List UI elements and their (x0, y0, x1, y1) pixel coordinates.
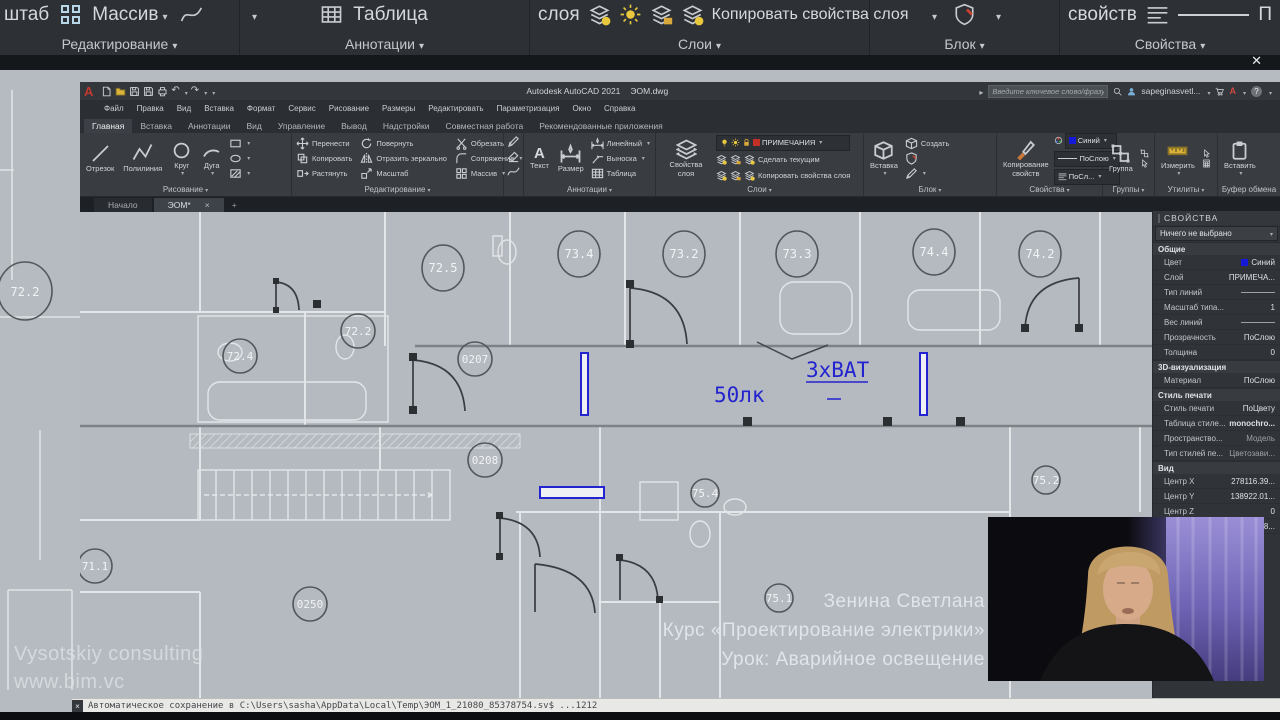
layer-lock-icon[interactable] (650, 3, 673, 26)
create-block-button[interactable]: Создать (905, 137, 950, 151)
svg-text:71.1: 71.1 (82, 560, 109, 573)
panel-label-layers[interactable]: Слои (656, 184, 863, 196)
ribbon-tab-bar: Главная Вставка Аннотации Вид Управление… (80, 117, 1280, 133)
file-tab-bar: Начало ЭОМ* × + (80, 197, 1280, 212)
ungroup-icon[interactable] (1140, 149, 1149, 158)
panel-label-groups[interactable]: Группы (1103, 184, 1154, 196)
lux-label: 50лк (714, 383, 765, 407)
linear-dim-button[interactable]: Линейный (591, 137, 650, 151)
property-row-centerx[interactable]: Центр X 278116.39... (1153, 474, 1280, 489)
lesson-title: Урок: Аварийное освещение (721, 649, 985, 671)
plot-icon[interactable] (157, 86, 168, 97)
tab-close-icon[interactable]: × (205, 200, 210, 210)
background-plan-strip: 72.2 (0, 70, 80, 712)
tab-annotate[interactable]: Аннотации (180, 119, 239, 133)
layer-color-swatch (753, 139, 760, 146)
block-attributes-icon[interactable] (905, 167, 950, 181)
luminaire-symbol (581, 353, 588, 415)
tab-featured-apps[interactable]: Рекомендованные приложения (531, 119, 670, 133)
palette-header[interactable]: СВОЙСТВА (1153, 211, 1280, 225)
panel-label-block[interactable]: Блок (878, 36, 1051, 53)
layer-lock-icon (742, 138, 751, 147)
zoom-panel-block: Блок (870, 0, 1060, 55)
svg-text:0250: 0250 (297, 598, 324, 611)
menu-parametric[interactable]: Параметризация (497, 104, 560, 113)
layer-on-icon[interactable] (588, 3, 611, 26)
leader-button[interactable]: Выноска (591, 152, 650, 166)
section-general[interactable]: Общие (1153, 242, 1280, 255)
copy-layer-props-button[interactable]: Копировать свойства слоя (716, 169, 850, 183)
svg-text:73.2: 73.2 (670, 247, 699, 261)
tab-manage[interactable]: Управление (270, 119, 333, 133)
panel-layers: Свойства слоя ПРИМЕЧАНИЯ Сделать текущим (656, 133, 864, 196)
layer-dropdown[interactable]: ПРИМЕЧАНИЯ (716, 135, 850, 151)
svg-text:73.4: 73.4 (565, 247, 594, 261)
zoom-panel-layers: слоя Копировать свойства слоя Слои (530, 0, 870, 55)
line-button[interactable]: Отрезок (84, 143, 116, 173)
luminaire-symbol (540, 487, 604, 498)
tab-insert[interactable]: Вставка (132, 119, 180, 133)
stretch-button[interactable]: Растянуть (296, 167, 352, 181)
match-properties-button[interactable]: Копирование свойств (1001, 139, 1051, 178)
table-button[interactable]: Таблица (591, 167, 650, 181)
svg-text:74.4: 74.4 (920, 245, 949, 259)
layer-freeze-icon (731, 138, 740, 147)
svg-text:0208: 0208 (472, 454, 499, 467)
staircase (198, 470, 450, 520)
undo-icon[interactable]: ↶ (171, 86, 179, 96)
block-edit-icon[interactable] (905, 152, 950, 166)
text-icon: A (534, 146, 545, 161)
props-word: свойств (1068, 4, 1137, 26)
ribbon: Отрезок Полилиния Круг Дуга Рисование П (80, 133, 1280, 197)
panel-label-properties[interactable]: Свойства (1068, 36, 1272, 53)
new-file-icon[interactable] (101, 86, 112, 97)
brand-watermark: Vysotskiy consulting www.bim.vc (14, 640, 203, 696)
color-swatch (1069, 137, 1076, 144)
panel-utilities: Измерить Утилиты (1155, 133, 1218, 196)
lineweight-icon (1146, 3, 1169, 26)
section-view[interactable]: Вид (1153, 461, 1280, 474)
layer-on-icon (720, 138, 729, 147)
panel-label-modify[interactable]: Редактирование (292, 184, 503, 196)
close-icon[interactable]: × (72, 700, 83, 712)
panel-label-block[interactable]: Блок (864, 184, 996, 196)
current-layer-name: ПРИМЕЧАНИЯ (762, 138, 815, 147)
window-title: Autodesk AutoCAD 2021ЭОМ.dwg (526, 86, 668, 96)
panel-label-properties[interactable]: Свойства (997, 184, 1102, 196)
panel-slim-tools (504, 133, 524, 196)
svg-text:75.4: 75.4 (692, 487, 719, 500)
linetype-icon (1058, 172, 1067, 181)
match-properties-icon[interactable] (507, 135, 520, 148)
dimension-button[interactable]: Размер (556, 143, 586, 173)
property-row-plotspace[interactable]: Пространство... Модель (1153, 431, 1280, 446)
property-row-material[interactable]: Материал ПоСлою (1153, 373, 1280, 388)
search-input[interactable] (988, 85, 1108, 98)
group-button[interactable]: Группа (1107, 143, 1135, 173)
text-button[interactable]: AТекст (528, 146, 551, 170)
zoomed-ribbon-overlay: штаб Массив Редактирование Таблица Аннот… (0, 0, 1280, 55)
block-edit-icon[interactable] (953, 3, 976, 26)
menu-edit[interactable]: Правка (137, 104, 164, 113)
svg-text:72.5: 72.5 (429, 261, 458, 275)
search-icon[interactable] (1113, 87, 1122, 96)
copy-button[interactable]: Копировать (296, 152, 352, 166)
measure-button[interactable]: Измерить (1159, 140, 1197, 178)
battery-label: 3хВАТ (806, 358, 870, 382)
menu-format[interactable]: Формат (247, 104, 275, 113)
menu-view[interactable]: Вид (177, 104, 191, 113)
layer-word: слоя (538, 4, 580, 26)
property-row-centery[interactable]: Центр Y 138922.01... (1153, 489, 1280, 504)
presenter-video (988, 517, 1264, 681)
tab-home[interactable]: Главная (84, 119, 132, 133)
selection-dropdown[interactable]: Ничего не выбрано (1155, 226, 1278, 241)
quick-select-icon[interactable] (1202, 149, 1211, 158)
taskbar-strip (0, 712, 1280, 720)
panel-properties: Копирование свойств Синий ПоСлою (997, 133, 1103, 196)
menu-insert[interactable]: Вставка (204, 104, 234, 113)
scale-label-partial: штаб (4, 4, 49, 26)
autocad-logo-icon[interactable]: A (84, 85, 93, 98)
spline-icon[interactable] (180, 3, 203, 26)
polyline-button[interactable]: Полилиния (121, 143, 164, 173)
user-icon[interactable] (1127, 87, 1136, 96)
menu-modify[interactable]: Редактировать (428, 104, 483, 113)
array-button[interactable]: Массив (92, 4, 167, 26)
tab-collaborate[interactable]: Совместная работа (437, 119, 531, 133)
layer-isolate-icon[interactable] (681, 3, 704, 26)
signed-in-user[interactable]: sapeginasvetl... (1141, 86, 1200, 96)
zoom-panel-editing: штаб Массив Редактирование (0, 0, 240, 55)
panel-label-clipboard[interactable]: Буфер обмена (1218, 184, 1280, 196)
scale-button[interactable]: Масштаб (360, 167, 447, 181)
mirror-button[interactable]: Отразить зеркально (360, 152, 447, 166)
close-icon[interactable] (1251, 53, 1262, 69)
battery-underline (806, 382, 868, 399)
redo-icon[interactable]: ↷ (191, 86, 199, 96)
move-button[interactable]: Перенести (296, 137, 352, 151)
video-gap-band (0, 55, 1280, 70)
luminaire-symbol (920, 353, 927, 415)
table-button[interactable]: Таблица (353, 4, 428, 26)
title-bar: A ↶ ↷ Autodesk AutoCAD 2021ЭОМ.dwg sapeg… (80, 82, 1280, 100)
panel-label-annotation[interactable]: Аннотации (524, 184, 655, 196)
property-row-plottable[interactable]: Таблица стиле... monochro... (1153, 416, 1280, 431)
help-icon[interactable]: ? (1251, 86, 1262, 97)
author-name: Зенина Светлана (823, 591, 985, 613)
course-caption: Зенина Светлана Курс «Проектирование эле… (663, 591, 985, 671)
panel-groups: Группа Группы (1103, 133, 1155, 196)
current-color: Синий (1078, 136, 1100, 145)
property-row-linetype[interactable]: Тип линий (1153, 285, 1280, 300)
panel-label-editing[interactable]: Редактирование (8, 36, 231, 53)
video-frame: штаб Массив Редактирование Таблица Аннот… (0, 0, 1280, 720)
svg-text:0207: 0207 (462, 353, 489, 366)
circle-button[interactable]: Круг (169, 140, 194, 178)
file-tab-active[interactable]: ЭОМ* × (154, 198, 224, 212)
course-title: Курс «Проектирование электрики» (663, 620, 985, 642)
property-row-ltscale[interactable]: Масштаб типа... 1 (1153, 300, 1280, 315)
menu-file[interactable]: Файл (104, 104, 124, 113)
linetype-partial: П (1258, 4, 1272, 26)
svg-text:72.4: 72.4 (227, 350, 254, 363)
layer-properties-button[interactable]: Свойства слоя (660, 139, 712, 178)
save-icon[interactable] (129, 86, 140, 97)
calculator-icon[interactable] (1202, 159, 1211, 168)
open-file-icon[interactable] (115, 86, 126, 97)
menu-draw[interactable]: Рисование (329, 104, 369, 113)
panel-block: Вставка Создать Блок (864, 133, 997, 196)
command-line-bar[interactable]: × Автоматическое сохранение в C:\Users\s… (72, 698, 1280, 713)
group-edit-icon[interactable] (1140, 159, 1149, 168)
svg-text:72.2: 72.2 (345, 325, 372, 338)
property-row-plotstyle[interactable]: Стиль печати ПоЦвету (1153, 401, 1280, 416)
panel-label-layers[interactable]: Слои (538, 36, 861, 53)
zoom-panel-annotations: Таблица Аннотации (240, 0, 530, 55)
rectangle-tool-icon[interactable] (229, 137, 250, 151)
block-caret-icon[interactable] (928, 4, 937, 26)
qat-dropdown-icon[interactable] (210, 82, 215, 100)
lineweight-sample (1058, 158, 1078, 159)
property-row-transparency[interactable]: Прозрачность ПоСлою (1153, 330, 1280, 345)
insert-block-button[interactable]: Вставка (868, 140, 900, 178)
lineweight-sample (1241, 322, 1275, 323)
panel-draw: Отрезок Полилиния Круг Дуга Рисование (80, 133, 292, 196)
panel-clipboard: Вставить Буфер обмена (1218, 133, 1280, 196)
menu-help[interactable]: Справка (604, 104, 635, 113)
property-row-layer[interactable]: Слой ПРИМЕЧА... (1153, 270, 1280, 285)
color-swatch (1241, 259, 1248, 266)
panel-label-draw[interactable]: Рисование (80, 184, 291, 196)
autodesk-badge-icon[interactable]: A (1229, 86, 1236, 96)
store-cart-icon[interactable] (1215, 87, 1224, 96)
tab-addins[interactable]: Надстройки (375, 119, 438, 133)
menu-dimension[interactable]: Размеры (382, 104, 415, 113)
menu-window[interactable]: Окно (572, 104, 591, 113)
make-current-button[interactable]: Сделать текущим (716, 153, 850, 167)
section-3d[interactable]: 3D-визуализация (1153, 360, 1280, 373)
property-row-thickness[interactable]: Толщина 0 (1153, 345, 1280, 360)
block-caret2-icon[interactable] (992, 4, 1001, 26)
property-row-color[interactable]: Цвет Синий (1153, 255, 1280, 270)
brand-name: Vysotskiy consulting (14, 640, 203, 668)
svg-text:75.2: 75.2 (1033, 474, 1060, 487)
panel-annotation: AТекст Размер Линейный Выноска Таблица А… (524, 133, 656, 196)
tab-view[interactable]: Вид (238, 119, 269, 133)
room-bubble-label: 72.2 (11, 285, 40, 299)
table-icon (320, 3, 343, 26)
svg-text:74.2: 74.2 (1026, 247, 1055, 261)
property-row-plottype[interactable]: Тип стилей пе... Цветозави... (1153, 446, 1280, 461)
app-menu-caret-icon[interactable] (1241, 82, 1246, 100)
color-wheel-icon (1054, 136, 1063, 145)
arc-button[interactable]: Дуга (199, 140, 224, 178)
linetype-sample (1241, 292, 1275, 293)
paste-button[interactable]: Вставить (1222, 140, 1258, 178)
panel-label-annotations[interactable]: Аннотации (248, 36, 521, 53)
svg-text:73.3: 73.3 (783, 247, 812, 261)
autosave-message: Автоматическое сохранение в C:\Users\sas… (88, 701, 597, 711)
erase-icon[interactable] (507, 150, 520, 163)
zoom-panel-properties: свойств П Свойства (1060, 0, 1280, 55)
user-menu-caret-icon[interactable] (1205, 82, 1210, 100)
layer-freeze-icon[interactable] (619, 3, 642, 26)
brand-site: www.bim.vc (14, 668, 203, 696)
webcam-overlay (988, 517, 1264, 681)
ellipse-tool-icon[interactable] (229, 152, 250, 166)
menu-bar: Файл Правка Вид Вставка Формат Сервис Ри… (80, 100, 1280, 117)
save-as-icon[interactable] (143, 86, 154, 97)
panel-label-utilities[interactable]: Утилиты (1155, 184, 1217, 196)
new-tab-icon[interactable]: + (226, 198, 243, 212)
rotate-button[interactable]: Повернуть (360, 137, 447, 151)
hatch-tool-icon[interactable] (229, 167, 250, 181)
spline-icon[interactable] (507, 165, 520, 178)
help-caret-icon[interactable] (1267, 82, 1272, 100)
panel-modify: Перенести Копировать Растянуть Повернуть… (292, 133, 504, 196)
property-row-lineweight[interactable]: Вес линий (1153, 315, 1280, 330)
section-plotstyle[interactable]: Стиль печати (1153, 388, 1280, 401)
tab-output[interactable]: Вывод (333, 119, 375, 133)
array-icon (61, 5, 80, 24)
linetype-sample (1178, 14, 1249, 16)
menu-tools[interactable]: Сервис (288, 104, 315, 113)
palette-grip-icon[interactable] (1158, 214, 1160, 223)
search-expand-icon[interactable] (979, 82, 983, 100)
dropdown-caret-icon[interactable] (248, 4, 257, 26)
quick-access-toolbar: ↶ ↷ (101, 82, 215, 100)
titlebar-right-cluster: sapeginasvetl... A ? (979, 82, 1272, 100)
file-tab-start[interactable]: Начало (94, 198, 152, 212)
